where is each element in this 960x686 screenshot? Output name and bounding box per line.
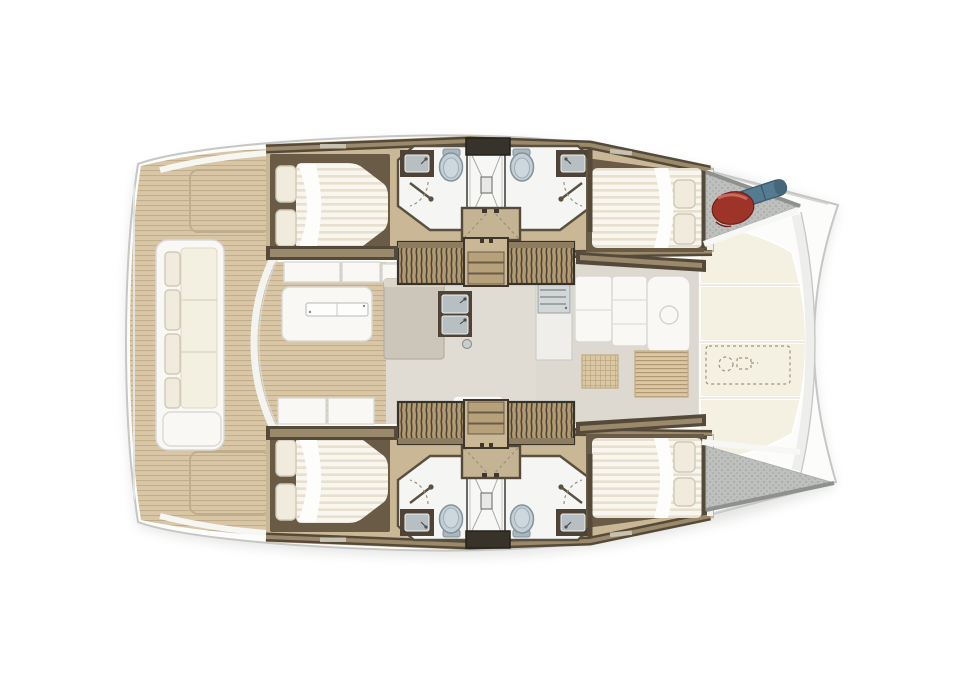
kettle-icon [463,340,472,349]
rattan-pouf [582,355,618,388]
bench-seat [278,398,326,424]
rattan-mat [635,351,688,397]
cockpit-bench [156,240,224,450]
lounge-sofa [612,276,647,346]
lounge-table [647,276,690,354]
bench-seat [342,262,380,282]
bench-table [163,412,221,446]
lounge-sofa [575,276,612,342]
bench-seat [328,398,374,424]
table-tray [306,303,368,316]
bench-seat [284,262,340,282]
floor-plan-canvas [0,0,960,686]
galley-counter [536,274,572,360]
catamaran-floor-plan [0,0,960,686]
